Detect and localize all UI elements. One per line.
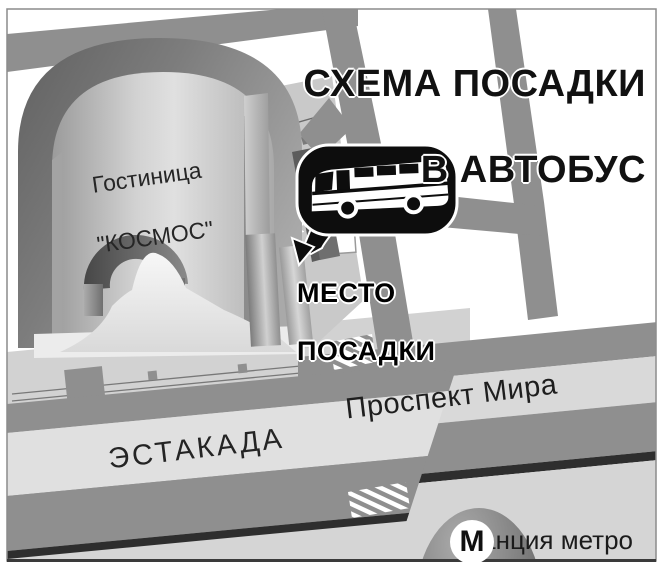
margin <box>0 0 7 577</box>
hotel-label-line2: "КОСМОС" <box>61 210 249 265</box>
page-title-line2: В АВТОБУС <box>303 149 646 192</box>
boarding-scheme-map: СХЕМА ПОСАДКИ В АВТОБУС Гостиница "КОСМО… <box>0 0 668 577</box>
margin <box>0 0 668 9</box>
boarding-label-line1: МЕСТО <box>297 279 435 308</box>
hotel-wing-block <box>244 93 270 246</box>
metro-m-letter: М <box>460 525 485 559</box>
boarding-label-line2: ПОСАДКИ <box>297 337 435 366</box>
metro-m-icon: М <box>450 520 494 564</box>
boarding-point-label: МЕСТО ПОСАДКИ <box>297 250 435 394</box>
hotel-label: Гостиница "КОСМОС" <box>49 121 254 295</box>
page-title-line1: СХЕМА ПОСАДКИ <box>303 63 646 106</box>
page-title: СХЕМА ПОСАДКИ В АВТОБУС <box>303 20 646 235</box>
hotel-label-line1: Гостиница <box>53 150 241 205</box>
footbridge-post <box>238 363 248 373</box>
footbridge-post <box>148 370 158 380</box>
margin <box>656 0 668 577</box>
